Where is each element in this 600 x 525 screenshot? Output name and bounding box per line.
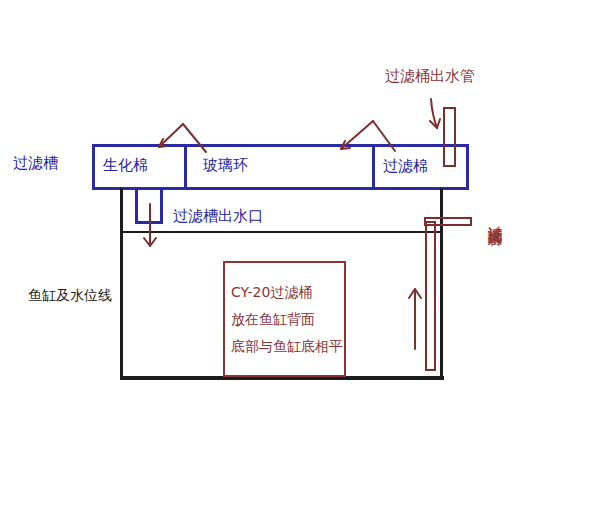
canister-outlet-pipe xyxy=(443,107,456,167)
tank-label: 鱼缸及水位线 xyxy=(28,287,112,305)
canister-note-line1: CY-20过滤桶 xyxy=(231,279,344,306)
canister-note-box: CY-20过滤桶 放在鱼缸背面 底部与鱼缸底相平 xyxy=(223,261,346,377)
trough-outlet-down-arrow-head xyxy=(144,238,156,246)
trough-label: 过滤槽 xyxy=(13,154,58,173)
tank-left-wall xyxy=(120,188,123,378)
compartment-label-filter-cotton: 过滤棉 xyxy=(383,157,428,176)
canister-inlet-pipe-label: 过滤桶入水管 xyxy=(486,214,503,314)
canister-inlet-pipe-vertical xyxy=(425,221,436,371)
canister-note-line3: 底部与鱼缸底相平 xyxy=(231,333,344,360)
trough-outlet-label: 过滤槽出水口 xyxy=(173,207,263,226)
trough-outlet-spout xyxy=(135,189,163,224)
tank-up-arrow-head xyxy=(409,289,421,298)
filter-diagram: 过滤槽 生化棉 玻璃环 过滤棉 过滤槽出水口 鱼缸及水位线 CY-20过滤桶 放… xyxy=(0,0,600,525)
compartment-label-glass-rings: 玻璃环 xyxy=(203,156,248,175)
outlet-pipe-down-arrow-head xyxy=(430,119,440,128)
compartment-label-biochemical-cotton: 生化棉 xyxy=(103,156,148,175)
trough-divider-2 xyxy=(372,147,375,187)
outlet-pipe-down-arrow-shaft xyxy=(431,99,437,128)
canister-note-line2: 放在鱼缸背面 xyxy=(231,306,344,333)
water-level-line xyxy=(120,231,443,233)
canister-outlet-pipe-label: 过滤桶出水管 xyxy=(385,67,475,86)
trough-divider-1 xyxy=(184,147,187,187)
